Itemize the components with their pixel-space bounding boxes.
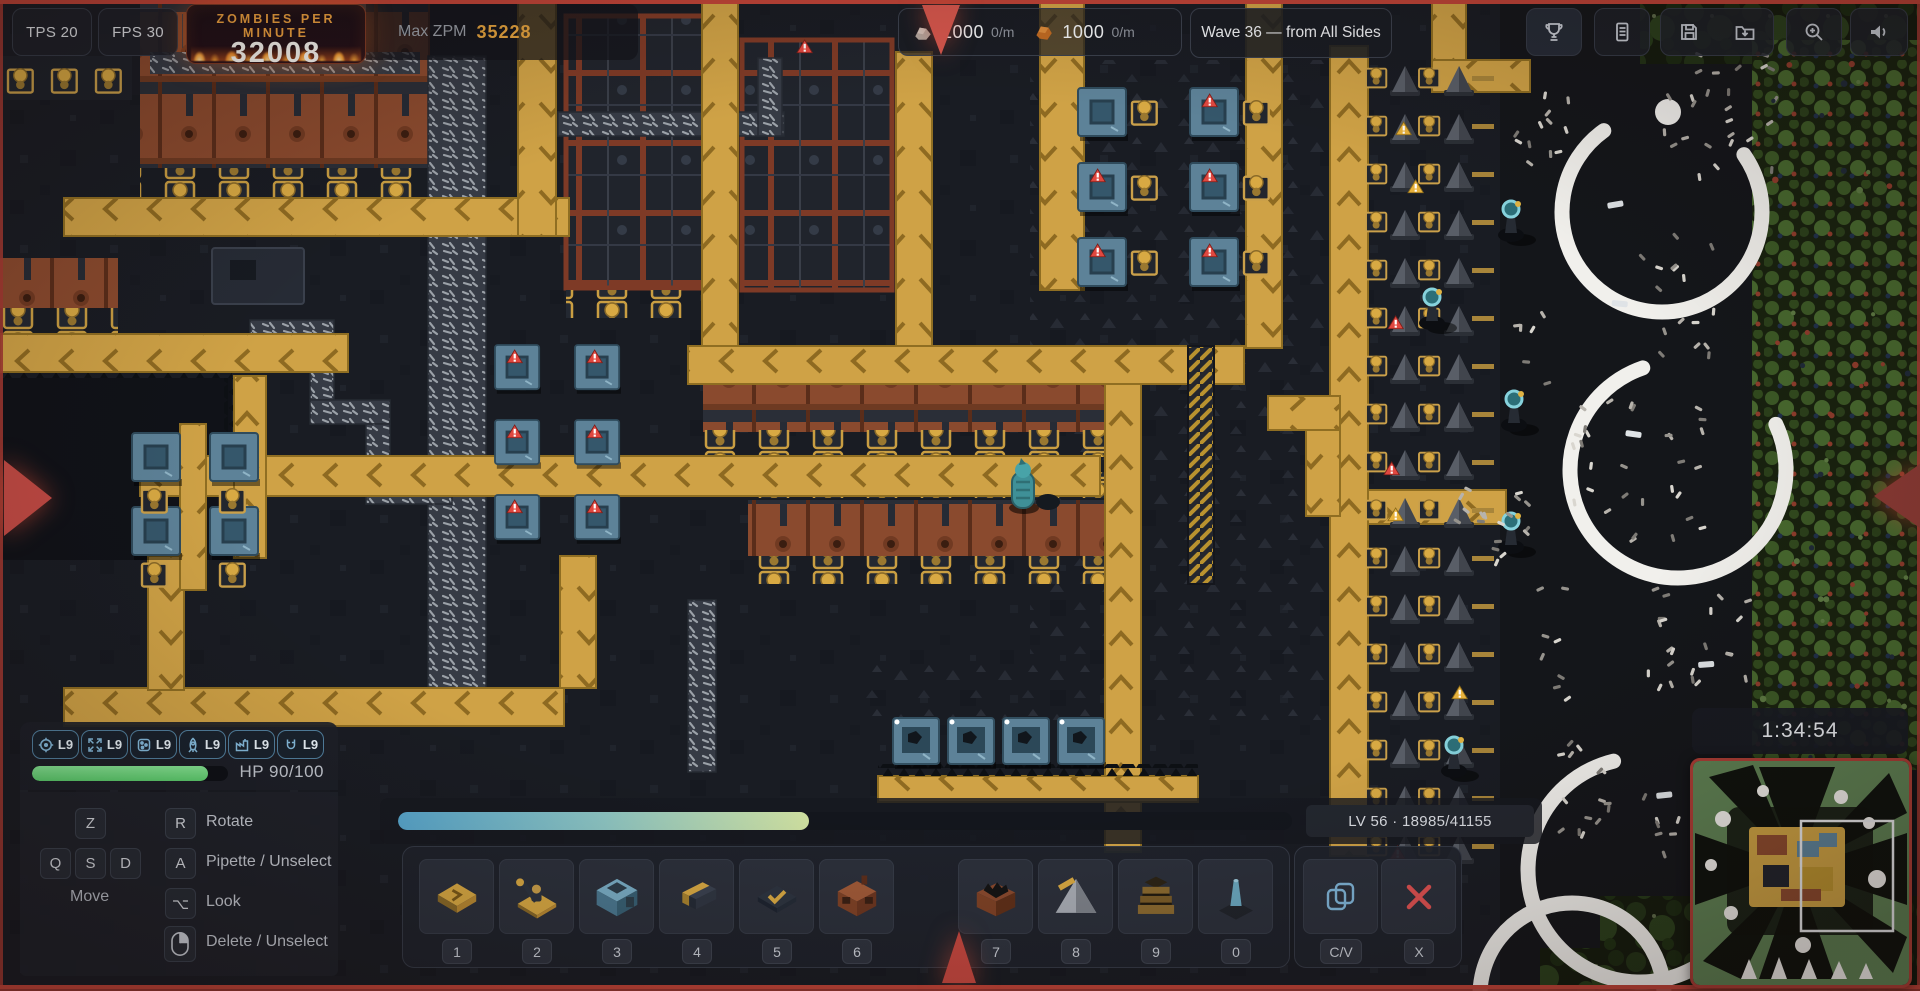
copper-icon bbox=[1031, 21, 1055, 43]
skill-level: L9 bbox=[205, 737, 220, 752]
move-label: Move bbox=[70, 888, 109, 906]
factory-icon bbox=[234, 737, 250, 753]
hotbar-slot-underground-belt[interactable] bbox=[739, 859, 814, 934]
zpm-panel: ZOMBIES PER MINUTE 32008 bbox=[186, 4, 366, 64]
max-zpm-value: 35228 bbox=[476, 22, 531, 43]
look-label: Look bbox=[206, 893, 241, 911]
key-rotate: R bbox=[165, 808, 196, 839]
max-zpm-panel: Max ZPM 35228 bbox=[366, 4, 638, 60]
shortcuts-panel: Z Q S D Move R Rotate A Pipette / Unsele… bbox=[20, 792, 338, 976]
topbar-divider bbox=[182, 14, 183, 48]
game-timer: 1:34:54 bbox=[1692, 708, 1908, 754]
tps-label: TPS 20 bbox=[26, 24, 78, 41]
slot-key-3: 3 bbox=[602, 939, 632, 964]
expand-icon bbox=[87, 737, 103, 753]
log-icon bbox=[1610, 20, 1634, 44]
cancel-icon bbox=[1404, 882, 1434, 912]
delete-label: Delete / Unselect bbox=[206, 933, 328, 951]
slot-key-6: 6 bbox=[842, 939, 872, 964]
key-left: Q bbox=[40, 848, 71, 879]
tps-button[interactable]: TPS 20 bbox=[12, 8, 92, 56]
key-look: ⌥ bbox=[165, 888, 196, 919]
hp-fill bbox=[32, 766, 208, 781]
save-icon[interactable] bbox=[1677, 20, 1701, 44]
slot-key-9: 9 bbox=[1141, 939, 1171, 964]
tower-icon bbox=[1210, 874, 1262, 920]
hotbar-utility-panel: C/V X bbox=[1294, 846, 1462, 968]
hotbar-slot-mine[interactable] bbox=[958, 859, 1033, 934]
skill-badge-target[interactable]: L9 bbox=[32, 730, 79, 759]
key-up: Z bbox=[75, 808, 106, 839]
skill-level: L9 bbox=[156, 737, 171, 752]
sound-ic on bbox=[1867, 20, 1891, 44]
mine-icon bbox=[970, 874, 1022, 920]
key-pipette: A bbox=[165, 848, 196, 879]
cancel-key: X bbox=[1404, 939, 1434, 964]
mouse-right-key bbox=[164, 926, 196, 962]
underground-belt-icon bbox=[751, 874, 803, 920]
skill-badge-expand[interactable]: L9 bbox=[81, 730, 128, 759]
copy-icon bbox=[1323, 879, 1359, 915]
slot-key-4: 4 bbox=[682, 939, 712, 964]
hp-bar bbox=[32, 766, 228, 781]
hotbar-slot-belt[interactable] bbox=[419, 859, 494, 934]
xp-level-text: LV 56 · 18985/41155 bbox=[1306, 805, 1534, 837]
furnace-icon bbox=[831, 874, 883, 920]
wave-arrow-right bbox=[1874, 464, 1920, 528]
skill-badge-factory[interactable]: L9 bbox=[228, 730, 275, 759]
conveyor-belt-icon bbox=[431, 874, 483, 920]
hotbar-slot-tower[interactable] bbox=[1198, 859, 1273, 934]
hotbar-slot-turret[interactable] bbox=[1038, 859, 1113, 934]
module-icon bbox=[136, 737, 152, 753]
skill-level: L9 bbox=[58, 737, 73, 752]
skill-level: L9 bbox=[254, 737, 269, 752]
hotbar-slot-inserter[interactable] bbox=[499, 859, 574, 934]
mouse-right-icon bbox=[171, 932, 189, 956]
skill-badge-rocket[interactable]: L9 bbox=[179, 730, 226, 759]
crate-icon bbox=[1130, 874, 1182, 920]
slot-key-7: 7 bbox=[981, 939, 1011, 964]
hotbar-slot-assembler[interactable] bbox=[579, 859, 654, 934]
skill-level: L9 bbox=[303, 737, 318, 752]
skills-panel: L9 L9 L9 L9 L9 L9 bbox=[20, 722, 338, 790]
achievements-button[interactable] bbox=[1526, 8, 1582, 56]
zoom-button[interactable] bbox=[1786, 8, 1842, 56]
pipette-label: Pipette / Unselect bbox=[206, 853, 331, 871]
zpm-value: 32008 bbox=[187, 40, 365, 64]
wave-arrow-bottom bbox=[942, 931, 976, 983]
xp-bar bbox=[398, 812, 1292, 830]
hotbar-slot-splitter[interactable] bbox=[659, 859, 734, 934]
skill-badge-magnet[interactable]: L9 bbox=[277, 730, 324, 759]
skill-badge-module[interactable]: L9 bbox=[130, 730, 177, 759]
turret-icon bbox=[1050, 874, 1102, 920]
key-down: S bbox=[75, 848, 106, 879]
fps-button[interactable]: FPS 30 bbox=[98, 8, 178, 56]
assembler-icon bbox=[591, 874, 643, 920]
slot-key-1: 1 bbox=[442, 939, 472, 964]
slot-key-0: 0 bbox=[1221, 939, 1251, 964]
xp-fill bbox=[398, 812, 809, 830]
hotbar-slot-crate[interactable] bbox=[1118, 859, 1193, 934]
hp-text: HP 90/100 bbox=[239, 762, 324, 782]
copy-paste-slot[interactable] bbox=[1303, 859, 1378, 934]
target-icon bbox=[38, 737, 54, 753]
max-zpm-label: Max ZPM bbox=[398, 23, 466, 41]
zoom-icon bbox=[1802, 20, 1826, 44]
inserter-icon bbox=[511, 874, 563, 920]
load-icon[interactable] bbox=[1733, 20, 1757, 44]
wave-panel: Wave 36 — from All Sides bbox=[1190, 8, 1392, 58]
slot-key-5: 5 bbox=[762, 939, 792, 964]
fps-label: FPS 30 bbox=[112, 24, 164, 41]
slot-key-2: 2 bbox=[522, 939, 552, 964]
xp-panel: LV 56 · 18985/41155 bbox=[380, 798, 1542, 844]
magnet-icon bbox=[283, 737, 299, 753]
minimap[interactable] bbox=[1690, 758, 1912, 988]
slot-key-8: 8 bbox=[1061, 939, 1091, 964]
stone-rate: 0/m bbox=[991, 24, 1014, 40]
rocket-icon bbox=[185, 737, 201, 753]
minimap-content bbox=[1693, 761, 1909, 985]
hotbar-slot-furnace[interactable] bbox=[819, 859, 894, 934]
save-load-group bbox=[1660, 8, 1774, 56]
wave-arrow-top bbox=[922, 5, 960, 55]
hotbar-panel: 1 2 3 4 5 6 7 8 9 0 bbox=[402, 846, 1290, 968]
copper-rate: 0/m bbox=[1111, 24, 1134, 40]
log-button[interactable] bbox=[1594, 8, 1650, 56]
splitter-icon bbox=[671, 874, 723, 920]
wave-label: Wave 36 — from All Sides bbox=[1201, 24, 1380, 42]
trophy-icon bbox=[1542, 20, 1566, 44]
copper-amount: 1000 bbox=[1062, 22, 1104, 43]
zpm-title: ZOMBIES PER MINUTE bbox=[187, 12, 365, 40]
game-screen: TPS 20 FPS 30 ZOMBIES PER MINUTE 32008 M… bbox=[0, 0, 1920, 991]
sound-button[interactable] bbox=[1850, 8, 1908, 56]
key-right: D bbox=[110, 848, 141, 879]
skill-level: L9 bbox=[107, 737, 122, 752]
rotate-label: Rotate bbox=[206, 813, 253, 831]
copy-paste-key: C/V bbox=[1320, 939, 1362, 964]
wave-arrow-left bbox=[4, 460, 52, 536]
cancel-slot[interactable] bbox=[1381, 859, 1456, 934]
